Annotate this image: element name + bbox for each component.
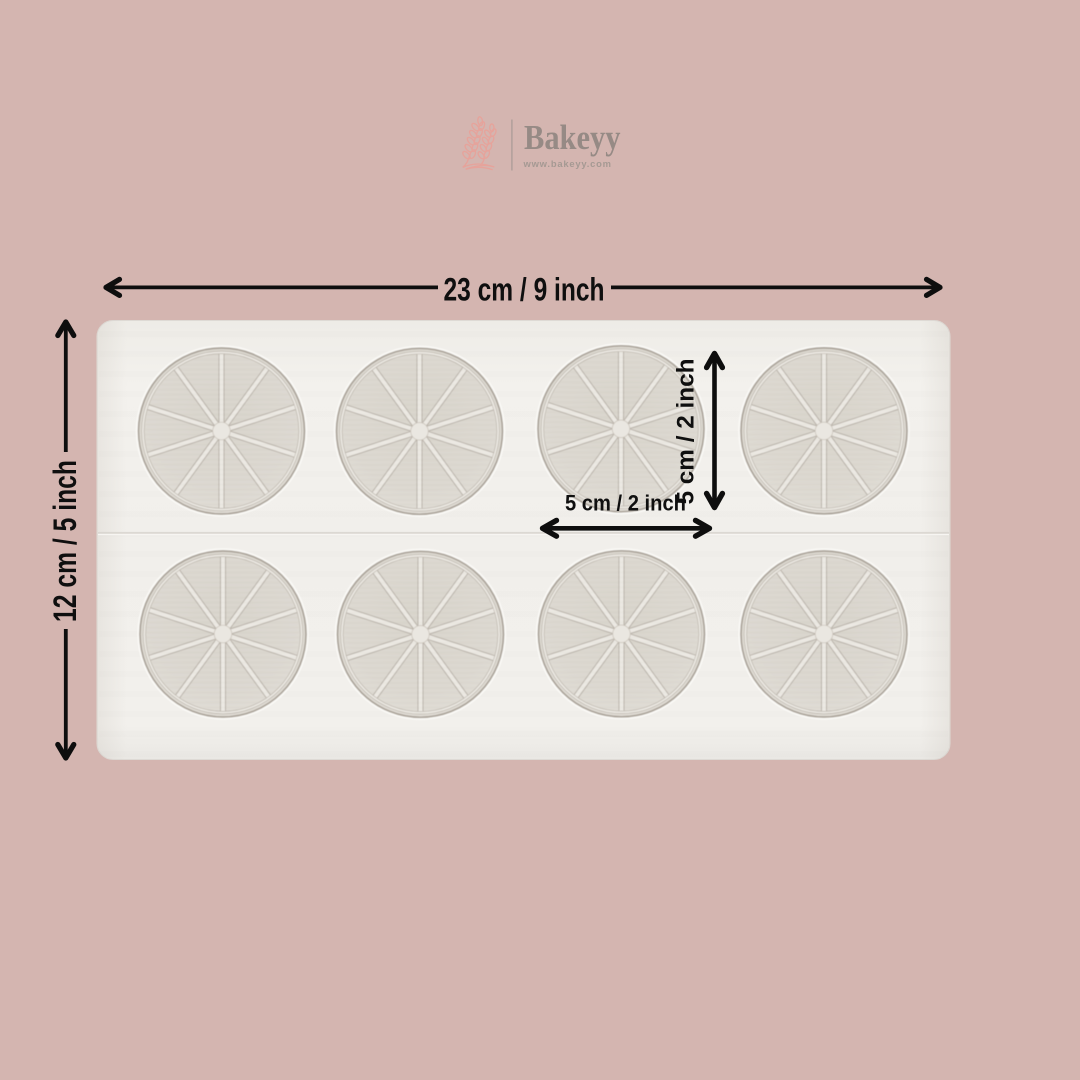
svg-text:Bakeyy: Bakeyy (524, 118, 621, 157)
svg-text:5 cm / 2 inch: 5 cm / 2 inch (673, 359, 700, 505)
svg-text:23 cm / 9 inch: 23 cm / 9 inch (444, 272, 605, 308)
svg-text:12 cm / 5 inch: 12 cm / 5 inch (47, 460, 83, 622)
svg-text:www.bakeyy.com: www.bakeyy.com (523, 158, 612, 169)
svg-text:5 cm / 2 inch: 5 cm / 2 inch (565, 491, 686, 516)
